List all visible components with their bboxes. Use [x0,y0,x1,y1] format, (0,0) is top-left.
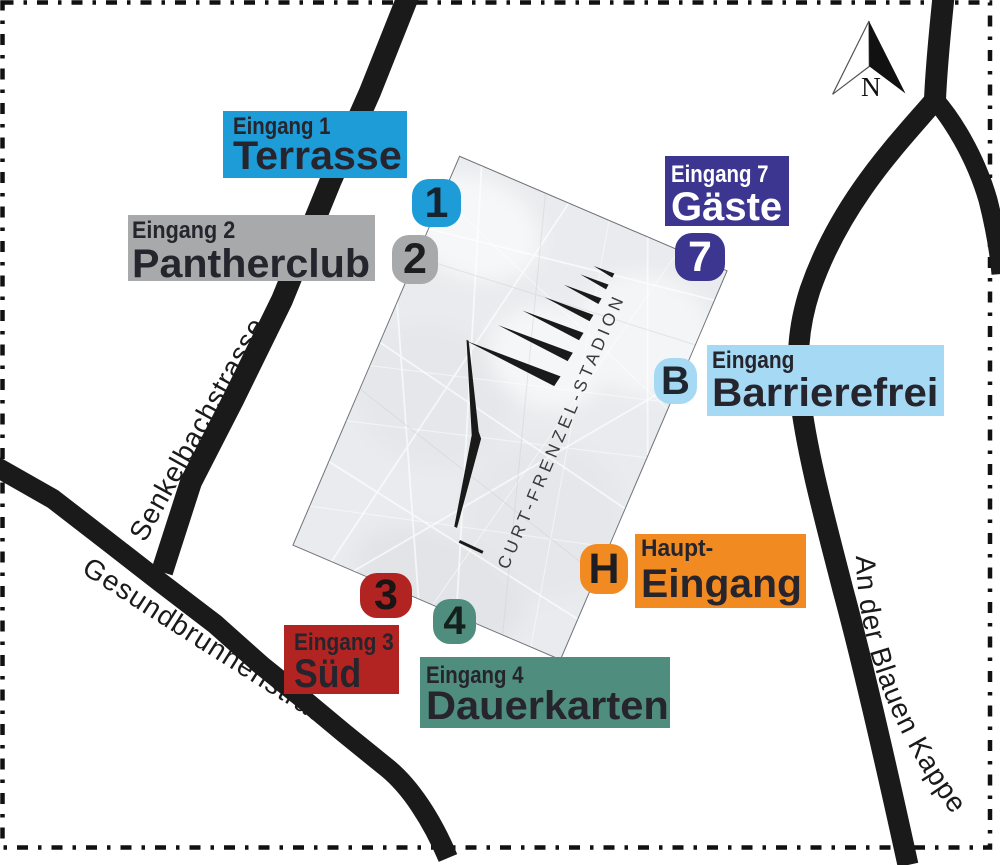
svg-text:N: N [861,71,881,102]
